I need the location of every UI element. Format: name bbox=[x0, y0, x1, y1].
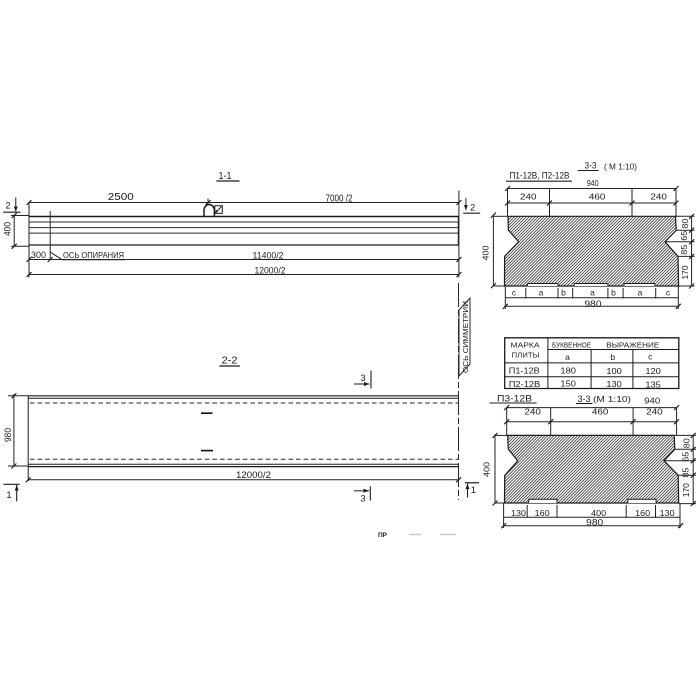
svg-text:( М 1:10): ( М 1:10) bbox=[604, 162, 637, 172]
svg-text:400: 400 bbox=[3, 222, 13, 236]
svg-text:ПЛИТЫ: ПЛИТЫ bbox=[512, 351, 540, 360]
svg-text:3-3: 3-3 bbox=[585, 160, 597, 170]
svg-text:65: 65 bbox=[681, 451, 690, 462]
svg-text:240: 240 bbox=[524, 406, 541, 416]
svg-text:135: 135 bbox=[645, 380, 661, 390]
svg-text:12000/2: 12000/2 bbox=[255, 265, 286, 276]
svg-text:400: 400 bbox=[591, 508, 606, 518]
svg-text:b: b bbox=[561, 288, 566, 298]
svg-text:a: a bbox=[565, 352, 570, 362]
svg-text:11400/2: 11400/2 bbox=[253, 250, 284, 261]
svg-text:П1-12В: П1-12В bbox=[509, 365, 540, 375]
svg-text:1-1: 1-1 bbox=[219, 171, 232, 182]
svg-text:240: 240 bbox=[646, 406, 663, 416]
svg-text:a: a bbox=[539, 288, 544, 298]
svg-text:980: 980 bbox=[3, 428, 13, 442]
svg-text:П3-12В: П3-12В bbox=[497, 393, 532, 403]
svg-text:130: 130 bbox=[511, 508, 526, 518]
svg-text:160: 160 bbox=[635, 508, 650, 518]
svg-text:a: a bbox=[590, 288, 595, 298]
svg-text:ОСЬ ОПИРАНИЯ: ОСЬ ОПИРАНИЯ bbox=[63, 251, 124, 260]
svg-text:85: 85 bbox=[680, 244, 689, 255]
svg-text:П2-12В: П2-12В bbox=[509, 379, 541, 389]
svg-text:80: 80 bbox=[681, 218, 690, 229]
svg-text:c: c bbox=[666, 288, 671, 298]
svg-text:2: 2 bbox=[470, 202, 475, 213]
svg-text:170: 170 bbox=[681, 265, 690, 280]
svg-text:БУКВЕННОЕ: БУКВЕННОЕ bbox=[552, 340, 591, 349]
svg-text:1: 1 bbox=[471, 485, 476, 496]
svg-text:130: 130 bbox=[660, 508, 675, 518]
svg-text:ВЫРАЖЕНИЕ: ВЫРАЖЕНИЕ bbox=[606, 340, 659, 349]
svg-text:940: 940 bbox=[644, 395, 660, 405]
svg-text:980: 980 bbox=[586, 518, 603, 528]
svg-text:100: 100 bbox=[606, 366, 622, 376]
svg-text:b: b bbox=[610, 352, 615, 362]
svg-text:170: 170 bbox=[682, 483, 691, 498]
svg-text:460: 460 bbox=[589, 191, 606, 201]
svg-text:240: 240 bbox=[520, 191, 537, 201]
svg-text:(М 1:10): (М 1:10) bbox=[593, 394, 631, 404]
svg-text:a: a bbox=[638, 288, 643, 298]
svg-text:85: 85 bbox=[681, 467, 690, 478]
svg-text:7000 /2: 7000 /2 bbox=[326, 194, 353, 205]
svg-text:940: 940 bbox=[587, 179, 599, 188]
svg-text:2-2: 2-2 bbox=[222, 355, 238, 367]
svg-text:460: 460 bbox=[592, 406, 609, 416]
svg-text:400: 400 bbox=[482, 462, 492, 477]
svg-text:c: c bbox=[648, 351, 653, 361]
svg-text:c: c bbox=[512, 288, 517, 298]
svg-text:П1-12В, П2-12В: П1-12В, П2-12В bbox=[510, 171, 570, 181]
svg-text:3: 3 bbox=[360, 494, 365, 505]
svg-text:120: 120 bbox=[645, 366, 661, 376]
svg-text:2500: 2500 bbox=[108, 192, 135, 203]
svg-text:240: 240 bbox=[650, 192, 667, 202]
svg-text:2: 2 bbox=[5, 201, 10, 212]
svg-text:12000/2: 12000/2 bbox=[236, 470, 271, 481]
svg-text:МАРКА: МАРКА bbox=[511, 340, 540, 349]
svg-text:80: 80 bbox=[683, 438, 692, 449]
svg-text:3: 3 bbox=[360, 373, 365, 384]
svg-text:ОСЬ СИММЕТРИИ: ОСЬ СИММЕТРИИ bbox=[461, 301, 470, 373]
svg-text:180: 180 bbox=[560, 365, 576, 375]
svg-text:65: 65 bbox=[680, 230, 689, 241]
svg-text:400: 400 bbox=[480, 245, 490, 260]
svg-text:b: b bbox=[611, 288, 616, 298]
svg-text:3-3: 3-3 bbox=[578, 394, 591, 404]
svg-text:300: 300 bbox=[31, 250, 46, 260]
svg-text:1: 1 bbox=[6, 490, 11, 501]
svg-text:ПР: ПР bbox=[378, 532, 388, 539]
svg-text:980: 980 bbox=[585, 299, 602, 309]
svg-text:160: 160 bbox=[535, 508, 550, 518]
svg-text:150: 150 bbox=[560, 378, 576, 388]
svg-text:130: 130 bbox=[606, 379, 622, 389]
